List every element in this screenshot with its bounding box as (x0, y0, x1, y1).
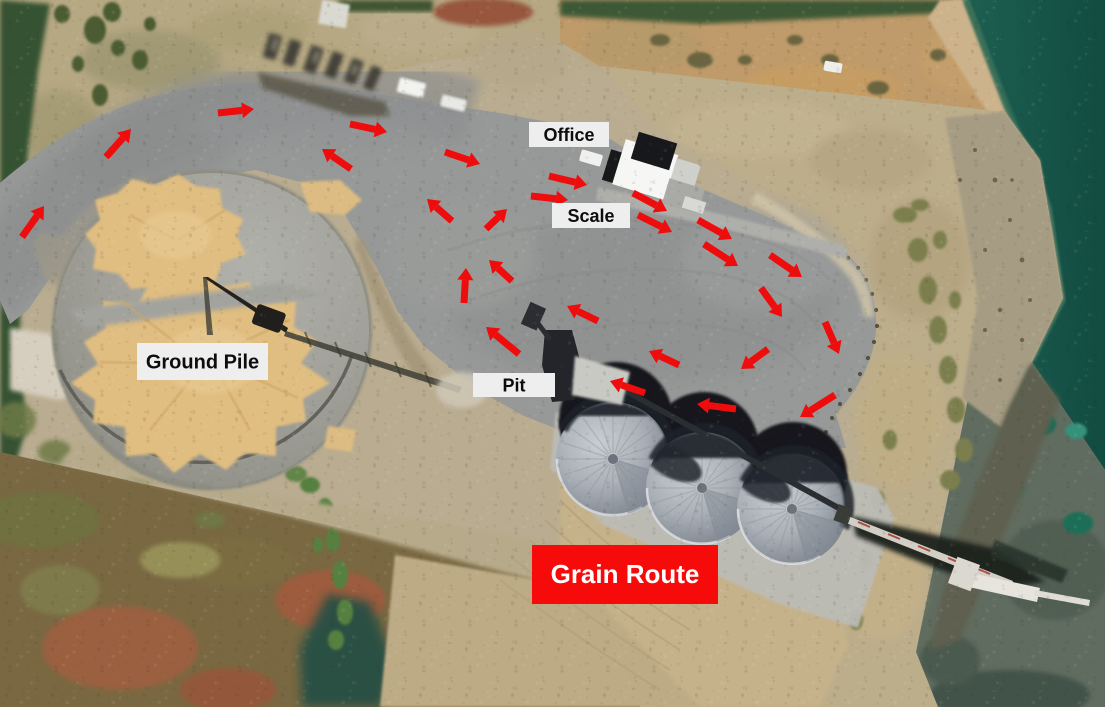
svg-text:Pit: Pit (502, 375, 525, 395)
svg-text:Scale: Scale (567, 206, 614, 226)
svg-text:Ground Pile: Ground Pile (146, 352, 259, 374)
svg-text:Grain Route: Grain Route (551, 559, 700, 589)
svg-text:Office: Office (543, 125, 594, 145)
